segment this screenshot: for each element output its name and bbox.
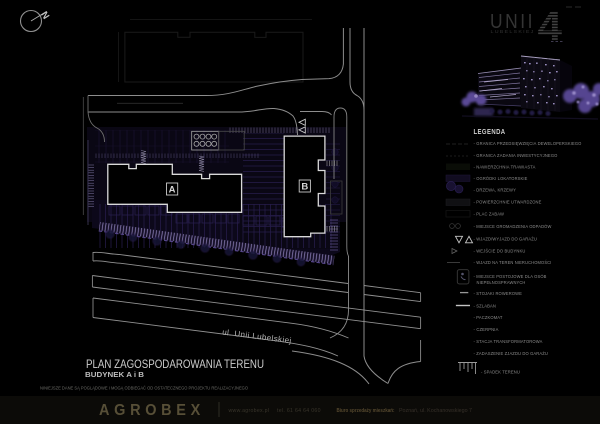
svg-text:- CZERPNIA: - CZERPNIA	[474, 327, 500, 332]
svg-text:- GRANICA ZADANIA INWESTYCYJNE: - GRANICA ZADANIA INWESTYCYJNEGO	[474, 153, 558, 158]
svg-text:NINIEJSZE DANE SĄ POGLĄDOWE I: NINIEJSZE DANE SĄ POGLĄDOWE I MOGĄ ODBIE…	[40, 385, 248, 391]
svg-text:- STACJA TRANSFORMATOROWA: - STACJA TRANSFORMATOROWA	[474, 339, 544, 344]
svg-text:PLAN ZAGOSPODAROWANIA TERENU: PLAN ZAGOSPODAROWANIA TERENU	[86, 357, 264, 371]
svg-text:- MIEJSCE POSTOJOWE DLA OSÓB: - MIEJSCE POSTOJOWE DLA OSÓB	[474, 273, 547, 279]
svg-text:- NAWIERZCHNIA TRAWIASTA: - NAWIERZCHNIA TRAWIASTA	[474, 165, 537, 170]
svg-text:- STOJAKI ROWEROWE: - STOJAKI ROWEROWE	[474, 291, 523, 296]
svg-text:4: 4	[538, 2, 563, 51]
svg-text:- WEJŚCIE DO BUDYNKU: - WEJŚCIE DO BUDYNKU	[474, 247, 526, 254]
svg-text:AGROBEX: AGROBEX	[99, 402, 205, 419]
svg-text:tel. 61 64 64 060: tel. 61 64 64 060	[277, 408, 321, 414]
svg-text:- DRZEWA, KRZEWY: - DRZEWA, KRZEWY	[474, 188, 517, 193]
svg-text:B: B	[301, 182, 308, 193]
svg-text:- POWIERZCHNIE UTWARDZONE: - POWIERZCHNIE UTWARDZONE	[474, 200, 542, 205]
svg-text:- ZADASZENIE ZJAZDU DO GARAŻU: - ZADASZENIE ZJAZDU DO GARAŻU	[474, 350, 549, 356]
svg-text:A: A	[169, 185, 176, 196]
svg-text:LEGENDA: LEGENDA	[474, 127, 506, 136]
svg-text:BUDYNEK A i B: BUDYNEK A i B	[85, 370, 145, 379]
svg-text:- OGRÓDKI LOKATORSKIE: - OGRÓDKI LOKATORSKIE	[474, 175, 528, 181]
svg-text:- SZLABAN: - SZLABAN	[474, 304, 497, 309]
svg-text:- WJAZD NA TEREN NIERUCHOMOŚCI: - WJAZD NA TEREN NIERUCHOMOŚCI	[474, 258, 552, 265]
svg-text:LUBELSKIEJ: LUBELSKIEJ	[491, 29, 535, 35]
svg-text:- PLAC ZABAW: - PLAC ZABAW	[474, 212, 505, 217]
svg-text:www.agrobex.pl: www.agrobex.pl	[229, 408, 270, 414]
svg-text:- WJAZD/WYJAZD DO GARAŻU: - WJAZD/WYJAZD DO GARAŻU	[474, 236, 538, 242]
svg-text:- MIEJSCE GROMADZENIA ODPADÓW: - MIEJSCE GROMADZENIA ODPADÓW	[474, 223, 552, 229]
svg-text:- PACZKOMAT: - PACZKOMAT	[474, 315, 503, 320]
svg-text:Biuro sprzedaży mieszkań:: Biuro sprzedaży mieszkań:	[337, 408, 395, 414]
svg-text:Poznań, ul. Kochanowskiego 7: Poznań, ul. Kochanowskiego 7	[399, 408, 472, 414]
svg-text:NIEPEŁNOSPRAWNYCH: NIEPEŁNOSPRAWNYCH	[477, 280, 526, 285]
svg-text:- GRANICA PRZEDSIĘWZIĘCIA DEWE: - GRANICA PRZEDSIĘWZIĘCIA DEWELOPERSKIEG…	[474, 141, 582, 146]
svg-text:- SPADEK TERENU: - SPADEK TERENU	[481, 370, 520, 375]
